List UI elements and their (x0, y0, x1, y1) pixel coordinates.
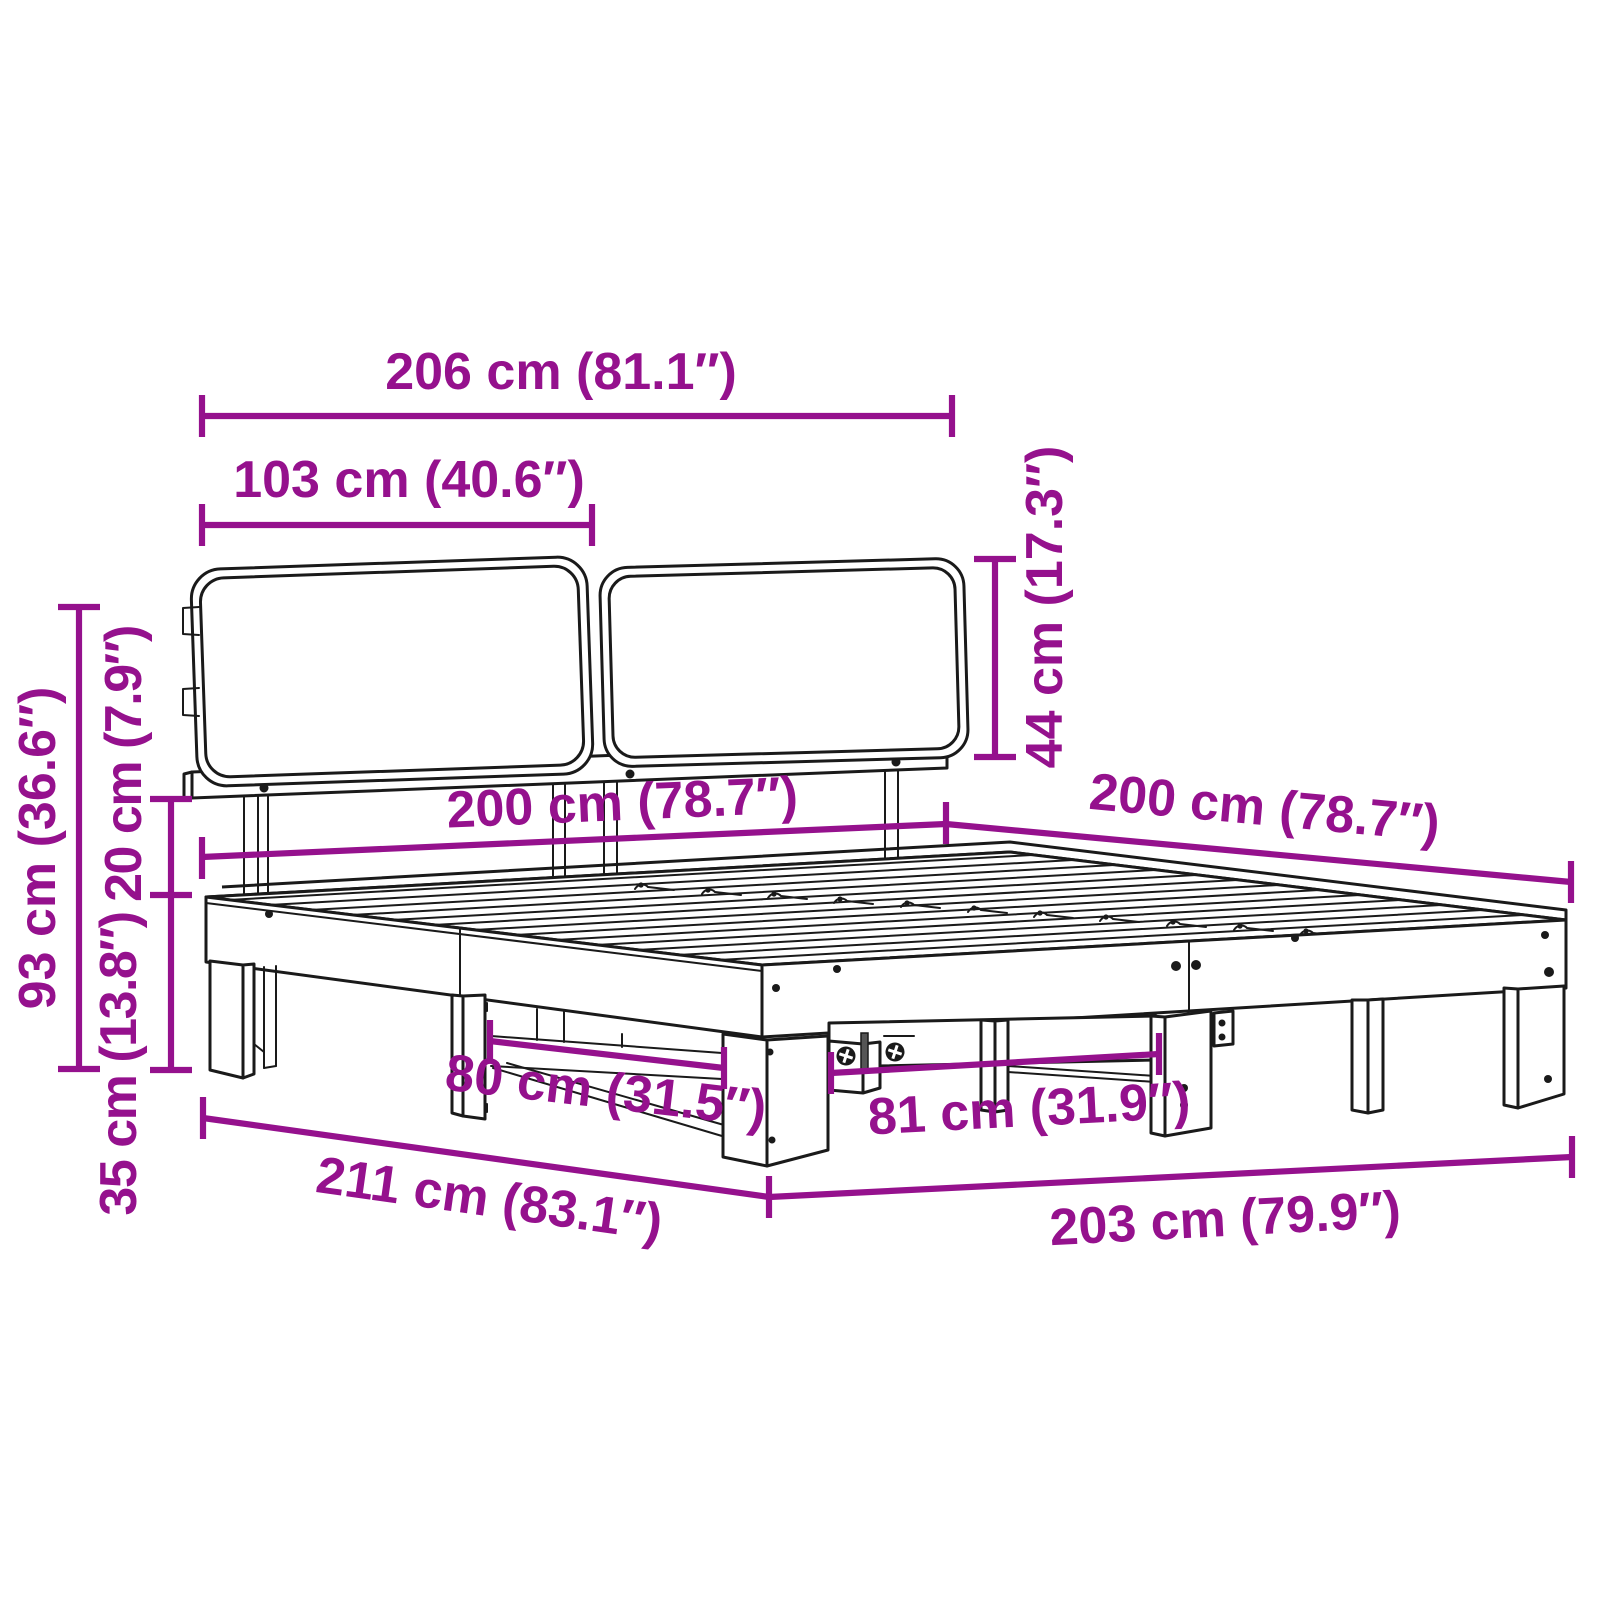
svg-text:20 cm (7.9″): 20 cm (7.9″) (95, 626, 153, 902)
svg-text:206 cm (81.1″): 206 cm (81.1″) (385, 343, 737, 401)
svg-text:103 cm (40.6″): 103 cm (40.6″) (233, 451, 585, 509)
svg-text:93 cm (36.6″): 93 cm (36.6″) (9, 687, 67, 1010)
svg-text:35 cm (13.8″): 35 cm (13.8″) (90, 912, 148, 1215)
svg-text:44 cm (17.3″): 44 cm (17.3″) (1016, 446, 1074, 769)
